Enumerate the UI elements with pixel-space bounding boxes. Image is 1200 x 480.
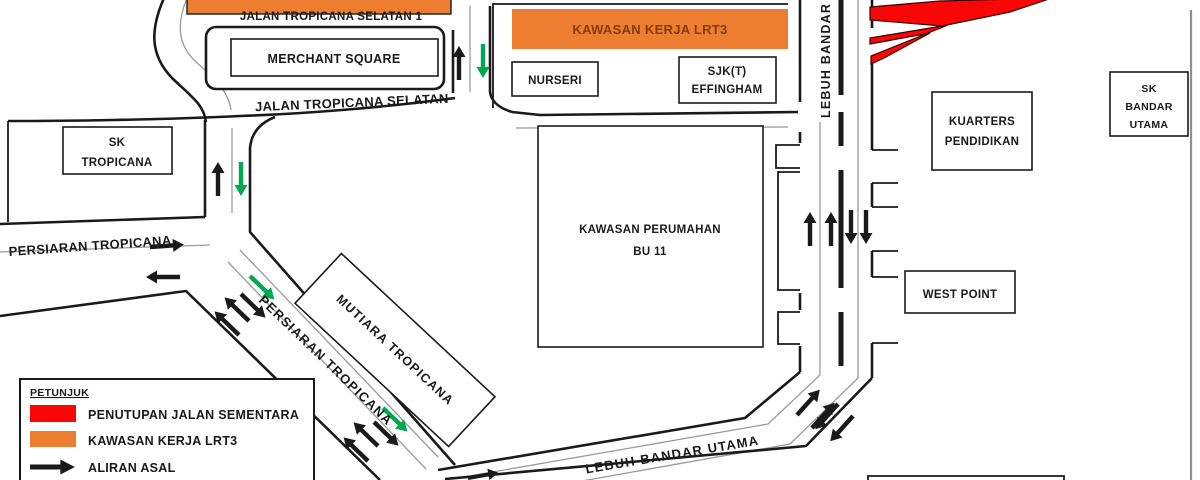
kawasan-perumahan-label-2: BU 11: [633, 246, 667, 258]
legend-label-closure: PENUTUPAN JALAN SEMENTARA: [88, 408, 299, 422]
side-road-stub: [778, 312, 800, 344]
road-edge: [250, 117, 275, 148]
flow-arrow-down-green: [235, 162, 248, 196]
legend-swatch-closure: [30, 405, 76, 422]
kuarters-pendidikan-box: [932, 92, 1032, 170]
side-road-stub: [778, 172, 800, 290]
sk-tropicana-label-1: SK: [109, 137, 126, 149]
road-label-lebuh-bandar-utama-vertical: LEBUH BANDAR UTAMA: [819, 0, 833, 118]
road-label-jalan-tropicana-selatan-1: JALAN TROPICANA SELATAN 1: [240, 11, 423, 23]
flow-arrow-bend-down: [810, 400, 842, 434]
sk-bandar-utama-label-2: BANDAR: [1125, 101, 1172, 113]
road-edge: [0, 217, 205, 224]
nurseri-label: NURSERI: [528, 75, 582, 87]
legend-label-workzone: KAWASAN KERJA LRT3: [88, 434, 237, 448]
closure-shape: [870, 0, 1052, 64]
flow-arrow-right-small: [467, 467, 499, 480]
road-edge-inner: [520, 378, 858, 480]
road-label-jalan-tropicana-selatan: JALAN TROPICANA SELATAN: [255, 91, 449, 114]
map-canvas: KAWASAN KERJA LRT3 JALAN TROPICANA SELAT…: [0, 0, 1200, 480]
side-road-stub: [776, 145, 800, 168]
road-edge: [154, 0, 206, 122]
sk-bandar-utama-label-1: SK: [1141, 83, 1156, 95]
legend: PETUNJUK PENUTUPAN JALAN SEMENTARA KAWAS…: [20, 379, 314, 480]
sjkt-effingham-box: [679, 57, 776, 103]
road-label-persiaran-tropicana: PERSIARAN TROPICANA: [8, 233, 172, 259]
flow-arrow-down-green: [477, 44, 490, 78]
kawasan-perumahan-box: [538, 126, 763, 347]
west-point-label: WEST POINT: [923, 289, 998, 301]
sjkt-effingham-label-2: EFFINGHAM: [691, 84, 762, 96]
side-road-stub: [872, 150, 898, 343]
kuarters-pendidikan-label-1: KUARTERS: [949, 116, 1015, 128]
flow-arrow-up: [212, 162, 225, 196]
flow-arrow-left: [146, 271, 180, 284]
work-zone-lrt3-label: KAWASAN KERJA LRT3: [572, 22, 727, 37]
sjkt-effingham-label-1: SJK(T): [708, 66, 747, 78]
road-edge: [512, 112, 798, 115]
block-edge: [868, 476, 1064, 480]
road-closure-map: KAWASAN KERJA LRT3 JALAN TROPICANA SELAT…: [0, 0, 1200, 480]
flow-arrow-bend-down: [825, 412, 857, 446]
flow-arrow-down: [860, 210, 873, 244]
merchant-square-label: MERCHANT SQUARE: [268, 52, 401, 66]
flow-arrow-down: [845, 210, 858, 244]
flow-arrow-up: [825, 212, 838, 246]
legend-title: PETUNJUK: [30, 387, 89, 399]
kuarters-pendidikan-label-2: PENDIDIKAN: [945, 136, 1020, 148]
legend-label-flow: ALIRAN ASAL: [88, 461, 176, 475]
flow-arrow-up: [804, 212, 817, 246]
legend-swatch-workzone: [30, 431, 76, 447]
road-closure-marker: [870, 0, 1052, 64]
sk-bandar-utama-label-3: UTAMA: [1130, 119, 1169, 131]
kawasan-perumahan-label-1: KAWASAN PERUMAHAN: [579, 224, 721, 236]
flow-arrow-up: [453, 46, 466, 80]
sk-tropicana-label-2: TROPICANA: [81, 157, 152, 169]
